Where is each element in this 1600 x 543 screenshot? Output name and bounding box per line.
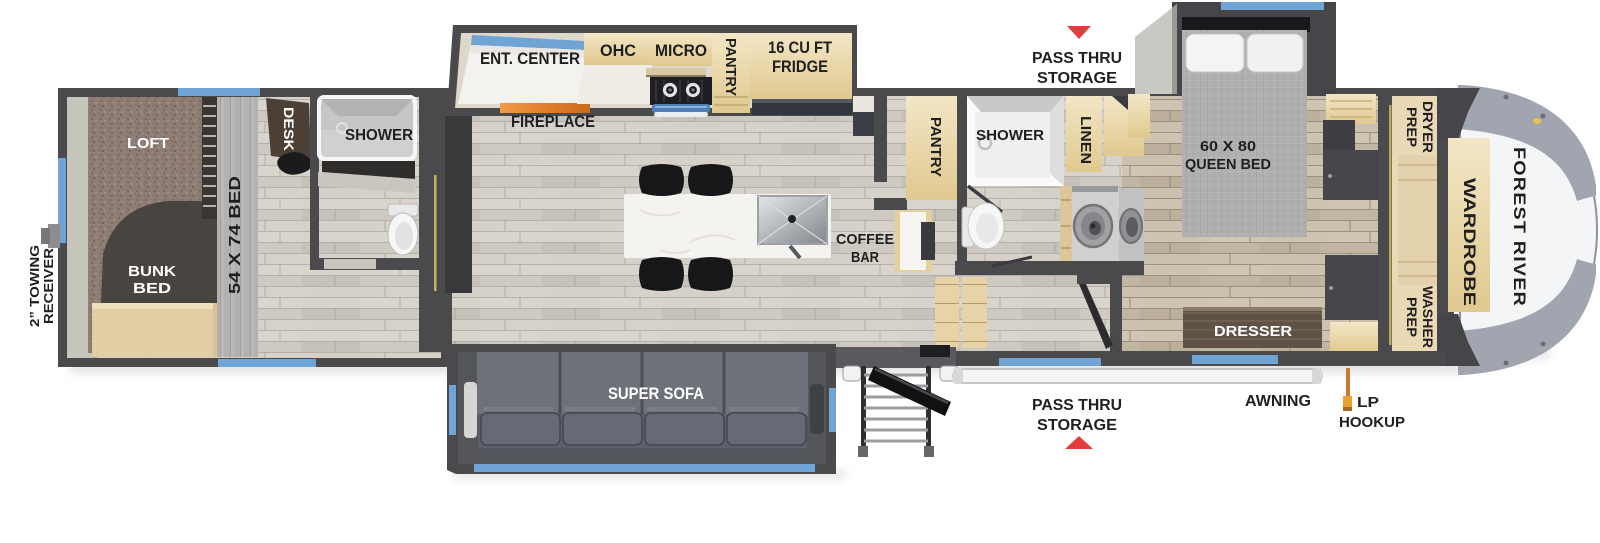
svg-text:LINEN: LINEN	[1077, 116, 1094, 164]
svg-text:QUEEN BED: QUEEN BED	[1185, 156, 1271, 173]
svg-text:PREP: PREP	[1404, 297, 1420, 337]
svg-text:DESK: DESK	[281, 107, 297, 151]
svg-text:DRESSER: DRESSER	[1214, 323, 1292, 340]
svg-text:SHOWER: SHOWER	[345, 127, 413, 144]
svg-text:DRYER: DRYER	[1420, 101, 1436, 153]
svg-text:FIREPLACE: FIREPLACE	[511, 112, 595, 131]
svg-text:PREP: PREP	[1404, 107, 1420, 147]
svg-text:SHOWER: SHOWER	[976, 127, 1044, 144]
svg-text:FRIDGE: FRIDGE	[772, 57, 828, 76]
svg-text:BAR: BAR	[851, 249, 879, 266]
svg-text:STORAGE: STORAGE	[1037, 417, 1117, 434]
svg-text:HOOKUP: HOOKUP	[1339, 414, 1405, 431]
svg-text:OHC: OHC	[600, 41, 636, 60]
svg-text:PANTRY: PANTRY	[927, 117, 944, 177]
svg-text:WARDROBE: WARDROBE	[1460, 178, 1479, 306]
svg-text:LP: LP	[1357, 394, 1379, 411]
svg-text:RECEIVER: RECEIVER	[41, 247, 56, 324]
svg-text:STORAGE: STORAGE	[1037, 70, 1117, 87]
svg-text:PANTRY: PANTRY	[722, 38, 739, 96]
svg-text:BUNK: BUNK	[128, 263, 176, 280]
svg-text:BED: BED	[133, 280, 171, 297]
svg-text:LOFT: LOFT	[127, 135, 169, 152]
svg-text:COFFEE: COFFEE	[836, 231, 894, 248]
svg-text:MICRO: MICRO	[655, 41, 707, 60]
svg-text:PASS THRU: PASS THRU	[1032, 397, 1122, 414]
svg-text:SUPER SOFA: SUPER SOFA	[608, 384, 704, 403]
svg-text:FOREST RIVER: FOREST RIVER	[1510, 147, 1528, 307]
svg-text:16 CU FT: 16 CU FT	[768, 38, 833, 57]
svg-text:PASS THRU: PASS THRU	[1032, 50, 1122, 67]
svg-text:54 X 74 BED: 54 X 74 BED	[227, 176, 244, 294]
svg-text:WASHER: WASHER	[1420, 286, 1436, 348]
svg-text:ENT. CENTER: ENT. CENTER	[480, 49, 580, 68]
svg-text:AWNING: AWNING	[1245, 393, 1311, 410]
svg-text:2” TOWING: 2” TOWING	[27, 245, 42, 327]
svg-text:60 X 80: 60 X 80	[1200, 138, 1256, 155]
